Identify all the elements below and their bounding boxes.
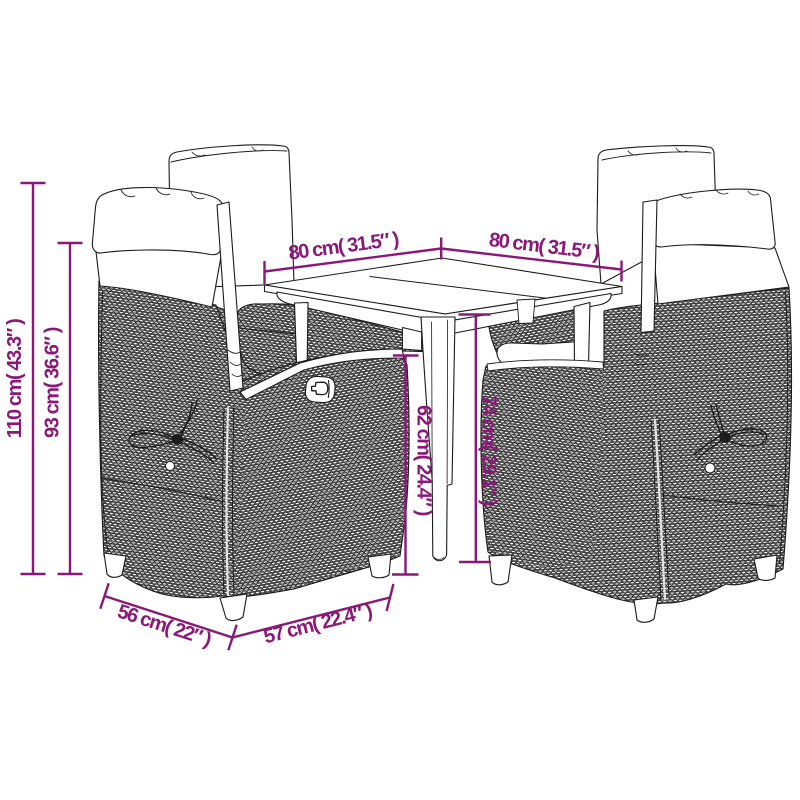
svg-text:62 cm( 24.4″ ): 62 cm( 24.4″ ) (413, 405, 435, 516)
svg-text:110 cm( 43.3″ ): 110 cm( 43.3″ ) (4, 319, 26, 438)
svg-text:74 cm( 29.1″ ): 74 cm( 29.1″ ) (478, 395, 500, 506)
svg-text:93 cm( 36.6″ ): 93 cm( 36.6″ ) (42, 327, 64, 438)
